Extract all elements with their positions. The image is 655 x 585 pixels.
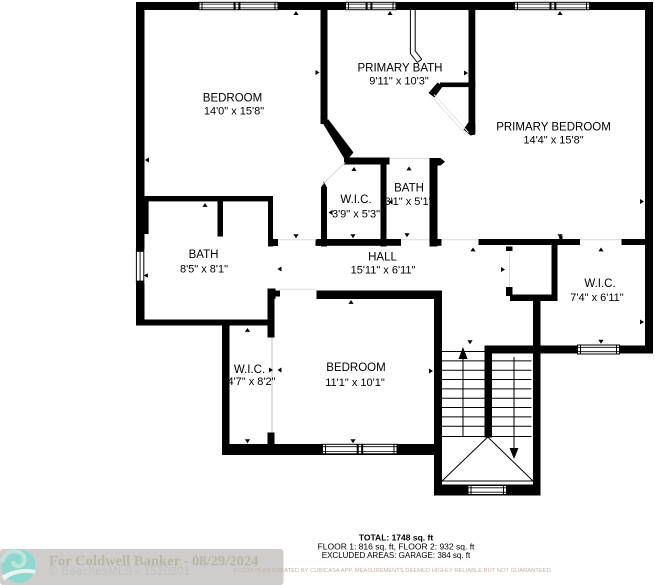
svg-text:W.I.C.: W.I.C. xyxy=(234,364,265,376)
svg-text:11'1" x 10'1": 11'1" x 10'1" xyxy=(325,377,385,389)
svg-text:W.I.C.: W.I.C. xyxy=(340,194,371,206)
svg-text:FLOOR 1: 816 sq. ft, FLOOR 2:: FLOOR 1: 816 sq. ft, FLOOR 2: 932 sq. ft xyxy=(318,542,475,552)
svg-text:BEDROOM: BEDROOM xyxy=(203,93,262,105)
svg-text:W.I.C.: W.I.C. xyxy=(584,278,615,290)
svg-text:PRIMARY BEDROOM: PRIMARY BEDROOM xyxy=(496,122,611,134)
svg-text:© BeachesMLS - 1520201: © BeachesMLS - 1520201 xyxy=(49,566,191,578)
svg-text:14'4" x 15'8": 14'4" x 15'8" xyxy=(523,134,583,146)
svg-text:HALL: HALL xyxy=(368,251,397,263)
svg-text:3'1" x 5'1": 3'1" x 5'1" xyxy=(384,196,432,208)
svg-text:EXCLUDED AREAS: GARAGE: 384 sq: EXCLUDED AREAS: GARAGE: 384 sq. ft xyxy=(322,551,471,560)
svg-text:PRIMARY BATH: PRIMARY BATH xyxy=(358,63,443,75)
svg-text:8'5" x 8'1": 8'5" x 8'1" xyxy=(180,263,228,275)
svg-text:FLOOR PLAN CREATED BY CUBICASA: FLOOR PLAN CREATED BY CUBICASA APP. MEAS… xyxy=(234,568,553,574)
svg-text:14'0" x 15'8": 14'0" x 15'8" xyxy=(204,106,264,118)
svg-text:3'9" x 5'3": 3'9" x 5'3" xyxy=(332,209,380,221)
svg-text:BATH: BATH xyxy=(394,183,424,195)
svg-text:BEDROOM: BEDROOM xyxy=(326,362,385,374)
svg-text:7'4" x 6'11": 7'4" x 6'11" xyxy=(570,292,623,304)
svg-text:9'11" x 10'3": 9'11" x 10'3" xyxy=(369,75,429,87)
svg-text:15'11" x 6'11": 15'11" x 6'11" xyxy=(351,264,416,276)
svg-text:4'7" x 8'2": 4'7" x 8'2" xyxy=(227,376,275,388)
svg-text:BATH: BATH xyxy=(189,249,219,261)
